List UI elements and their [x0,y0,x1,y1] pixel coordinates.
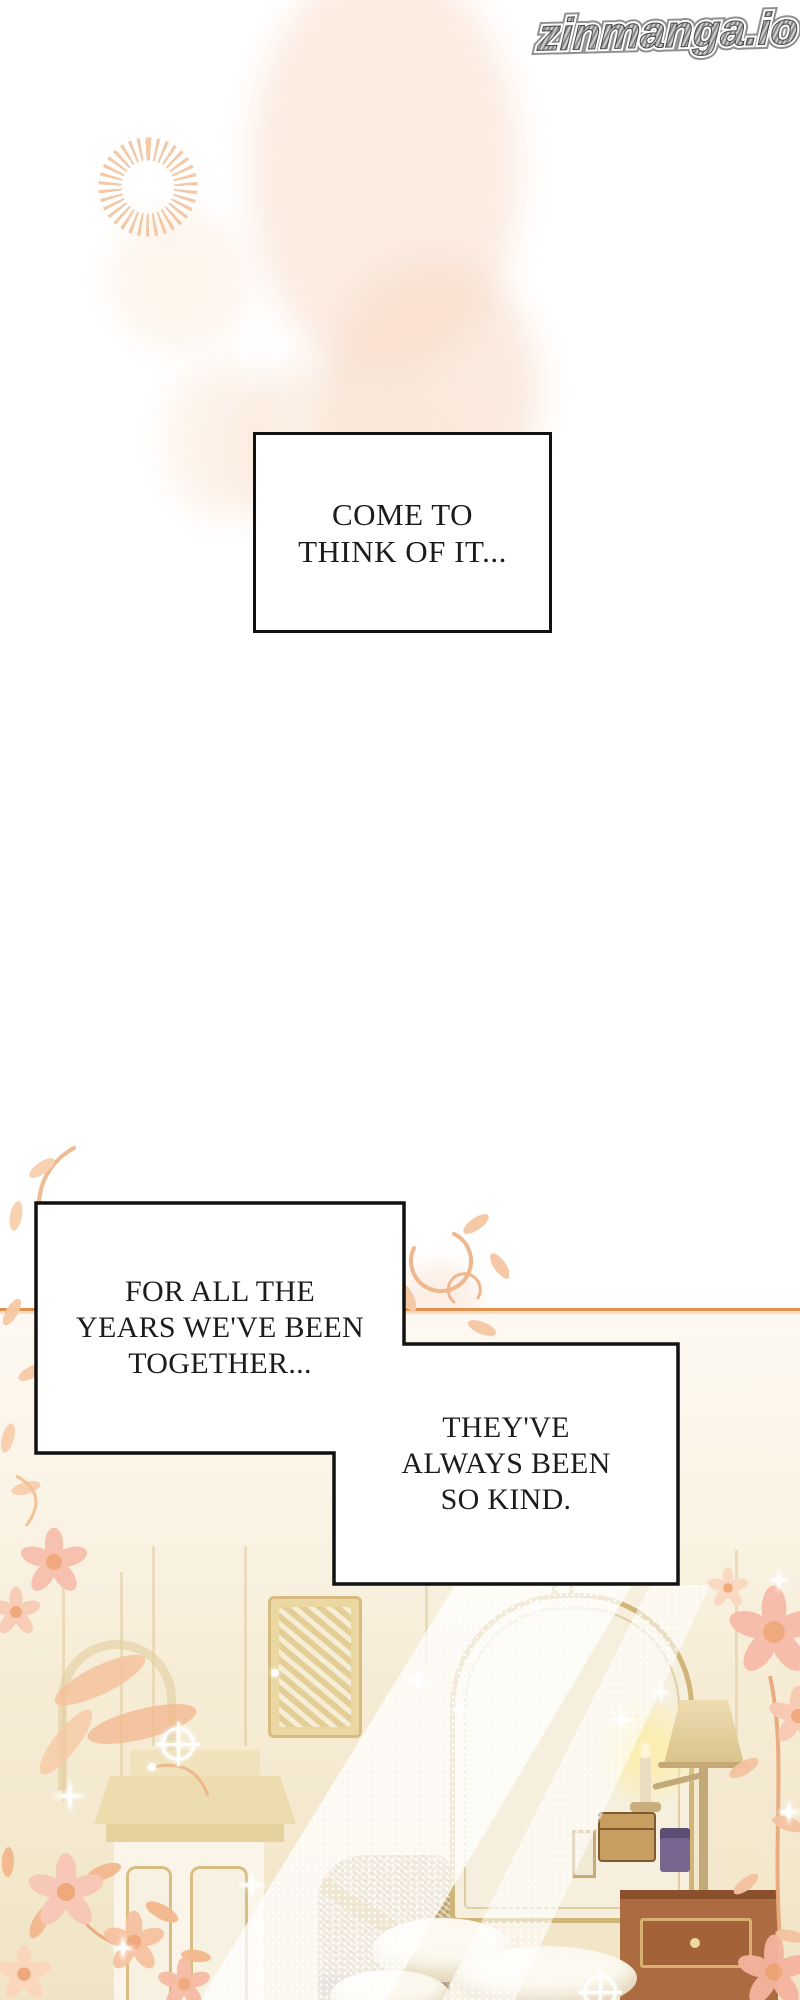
speech-bubble-1-text: COME TO THINK OF IT... [253,432,552,633]
site-watermark: zinmanga.io zinmanga.io zinmanga.io [538,0,800,68]
ring-sparkle-icon [161,1727,195,1761]
sparkle-icon [766,1567,792,1593]
bubble-line: TOGETHER... [128,1346,312,1382]
gold-wall-ornament [268,1596,362,1738]
bubble-line: THINK OF IT... [298,533,507,570]
bubble-line: THEY'VE [442,1410,569,1446]
sparkle-icon [608,1707,634,1733]
sunburst-icon [96,135,200,239]
sparkle-dot-icon [148,1763,156,1771]
sparkle-icon [776,1799,800,1825]
bubble-line: COME TO [332,496,473,533]
bubble-line: SO KIND. [441,1482,572,1518]
sparkle-icon [110,1935,136,1961]
sparkle-icon [650,1682,672,1704]
watermark-text: zinmanga.io [536,0,800,67]
sparkle-dot-icon [271,1669,279,1677]
bubble-line: ALWAYS BEEN [401,1446,610,1482]
bubble-line: FOR ALL THE [125,1274,315,1310]
speech-bubble-3-text: THEY'VE ALWAYS BEEN SO KIND. [334,1344,678,1584]
bubble-line: YEARS WE'VE BEEN [76,1310,364,1346]
sparkle-icon [450,1700,470,1720]
sparkle-icon [52,1778,88,1814]
sparkle-icon [405,1667,431,1693]
comic-page: zinmanga.io zinmanga.io zinmanga.io [0,0,800,2000]
sparkle-icon [237,1870,267,1900]
